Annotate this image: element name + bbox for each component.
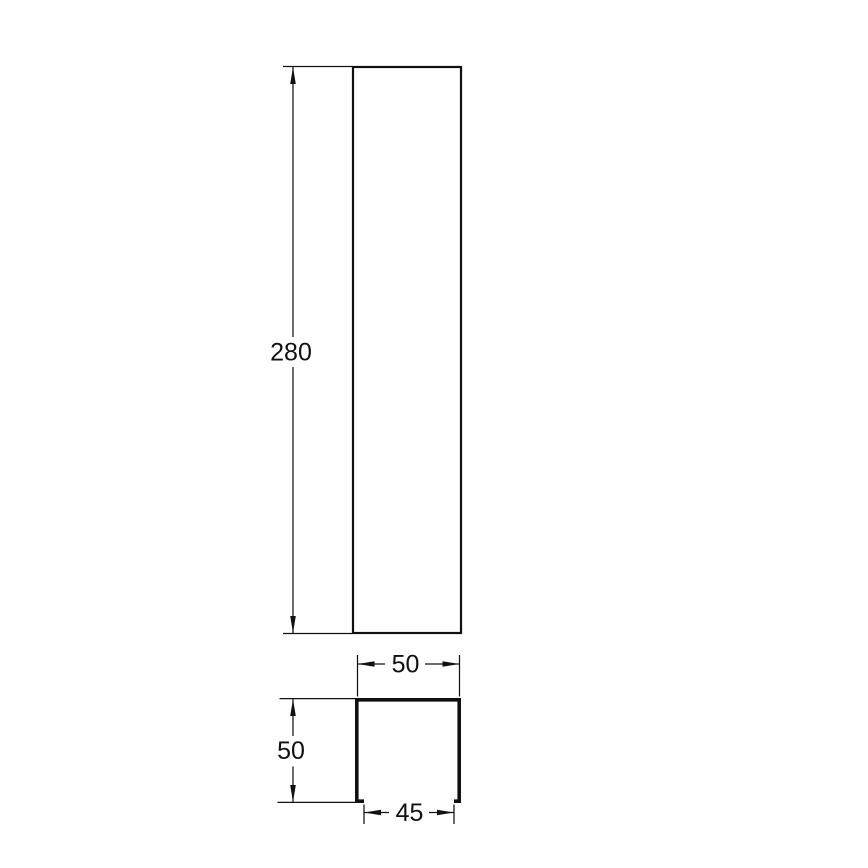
section-view-outline (357, 700, 459, 801)
dimension-arrow-right (443, 661, 460, 667)
section-view (357, 700, 459, 801)
drawing-canvas: 280 50 50 (0, 0, 868, 868)
dim-section-inner-width: 45 (364, 799, 454, 827)
dimension-arrow-up (290, 67, 296, 84)
front-view (353, 67, 461, 633)
dim-section-outer-width: 50 (358, 651, 460, 697)
dim-label-front-height: 280 (270, 339, 312, 367)
dimension-arrow-right (437, 810, 454, 816)
dimension-arrow-left (358, 661, 375, 667)
dimension-arrow-left (364, 810, 381, 816)
dim-label-section-outer-width: 50 (392, 651, 420, 679)
dimension-arrow-down (290, 785, 296, 802)
dim-front-height: 280 (270, 67, 352, 634)
dim-label-section-height: 50 (277, 737, 305, 765)
front-view-outline (353, 67, 461, 633)
technical-dimension-drawing: 280 50 50 (0, 0, 868, 868)
dimension-arrow-down (290, 616, 296, 633)
dim-label-section-inner-width: 45 (396, 799, 424, 827)
dim-section-height: 50 (277, 699, 356, 803)
dimension-arrow-up (290, 699, 296, 716)
